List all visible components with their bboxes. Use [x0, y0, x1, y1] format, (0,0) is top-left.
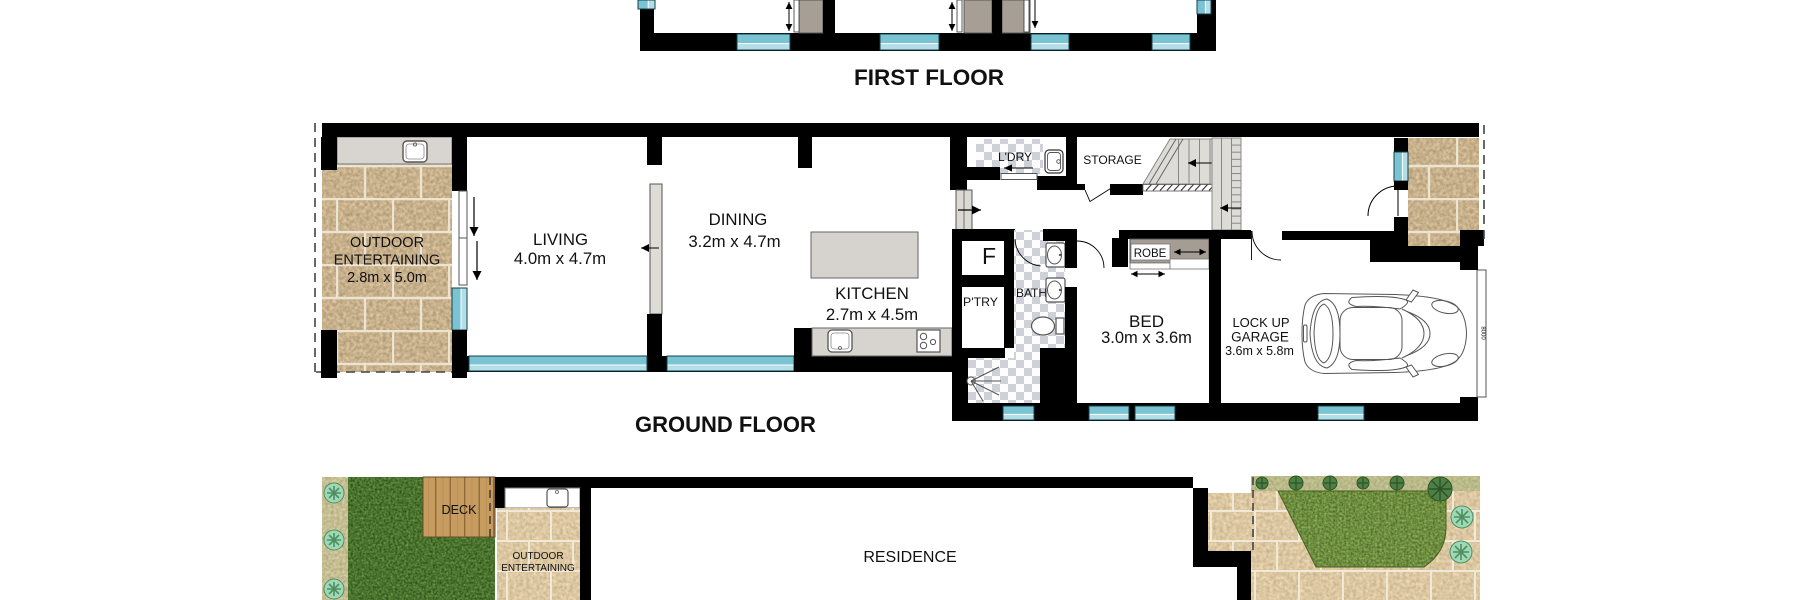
svg-text:3.6m x 5.8m: 3.6m x 5.8m — [1225, 344, 1294, 358]
svg-text:8000: 8000 — [1480, 326, 1486, 340]
svg-text:P'TRY: P'TRY — [963, 295, 998, 309]
svg-text:ENTERTAINING: ENTERTAINING — [334, 253, 441, 269]
svg-text:L'DRY: L'DRY — [998, 150, 1032, 164]
svg-text:LIVING: LIVING — [533, 230, 588, 249]
svg-text:F: F — [982, 243, 996, 269]
svg-text:RESIDENCE: RESIDENCE — [863, 549, 956, 566]
svg-text:FIRST FLOOR: FIRST FLOOR — [854, 65, 1004, 90]
svg-text:ENTERTAINING: ENTERTAINING — [501, 563, 575, 574]
svg-text:KITCHEN: KITCHEN — [835, 284, 909, 303]
svg-text:GARAGE: GARAGE — [1231, 330, 1289, 345]
svg-text:STORAGE: STORAGE — [1083, 153, 1141, 167]
svg-text:BATH: BATH — [1016, 286, 1047, 300]
svg-text:OUTDOOR: OUTDOOR — [350, 235, 424, 251]
svg-text:3.0m x 3.6m: 3.0m x 3.6m — [1101, 329, 1192, 347]
svg-text:LOCK UP: LOCK UP — [1232, 315, 1289, 330]
svg-text:2.7m x 4.5m: 2.7m x 4.5m — [826, 305, 918, 324]
svg-text:2.8m x 5.0m: 2.8m x 5.0m — [347, 270, 427, 286]
svg-text:GROUND FLOOR: GROUND FLOOR — [635, 412, 816, 437]
svg-text:OUTDOOR: OUTDOOR — [512, 551, 563, 562]
svg-text:DECK: DECK — [442, 503, 478, 517]
svg-text:3.2m x 4.7m: 3.2m x 4.7m — [688, 232, 780, 251]
svg-text:ROBE: ROBE — [1134, 248, 1167, 260]
svg-text:DINING: DINING — [709, 210, 768, 229]
svg-text:4.0m x 4.7m: 4.0m x 4.7m — [514, 249, 606, 268]
